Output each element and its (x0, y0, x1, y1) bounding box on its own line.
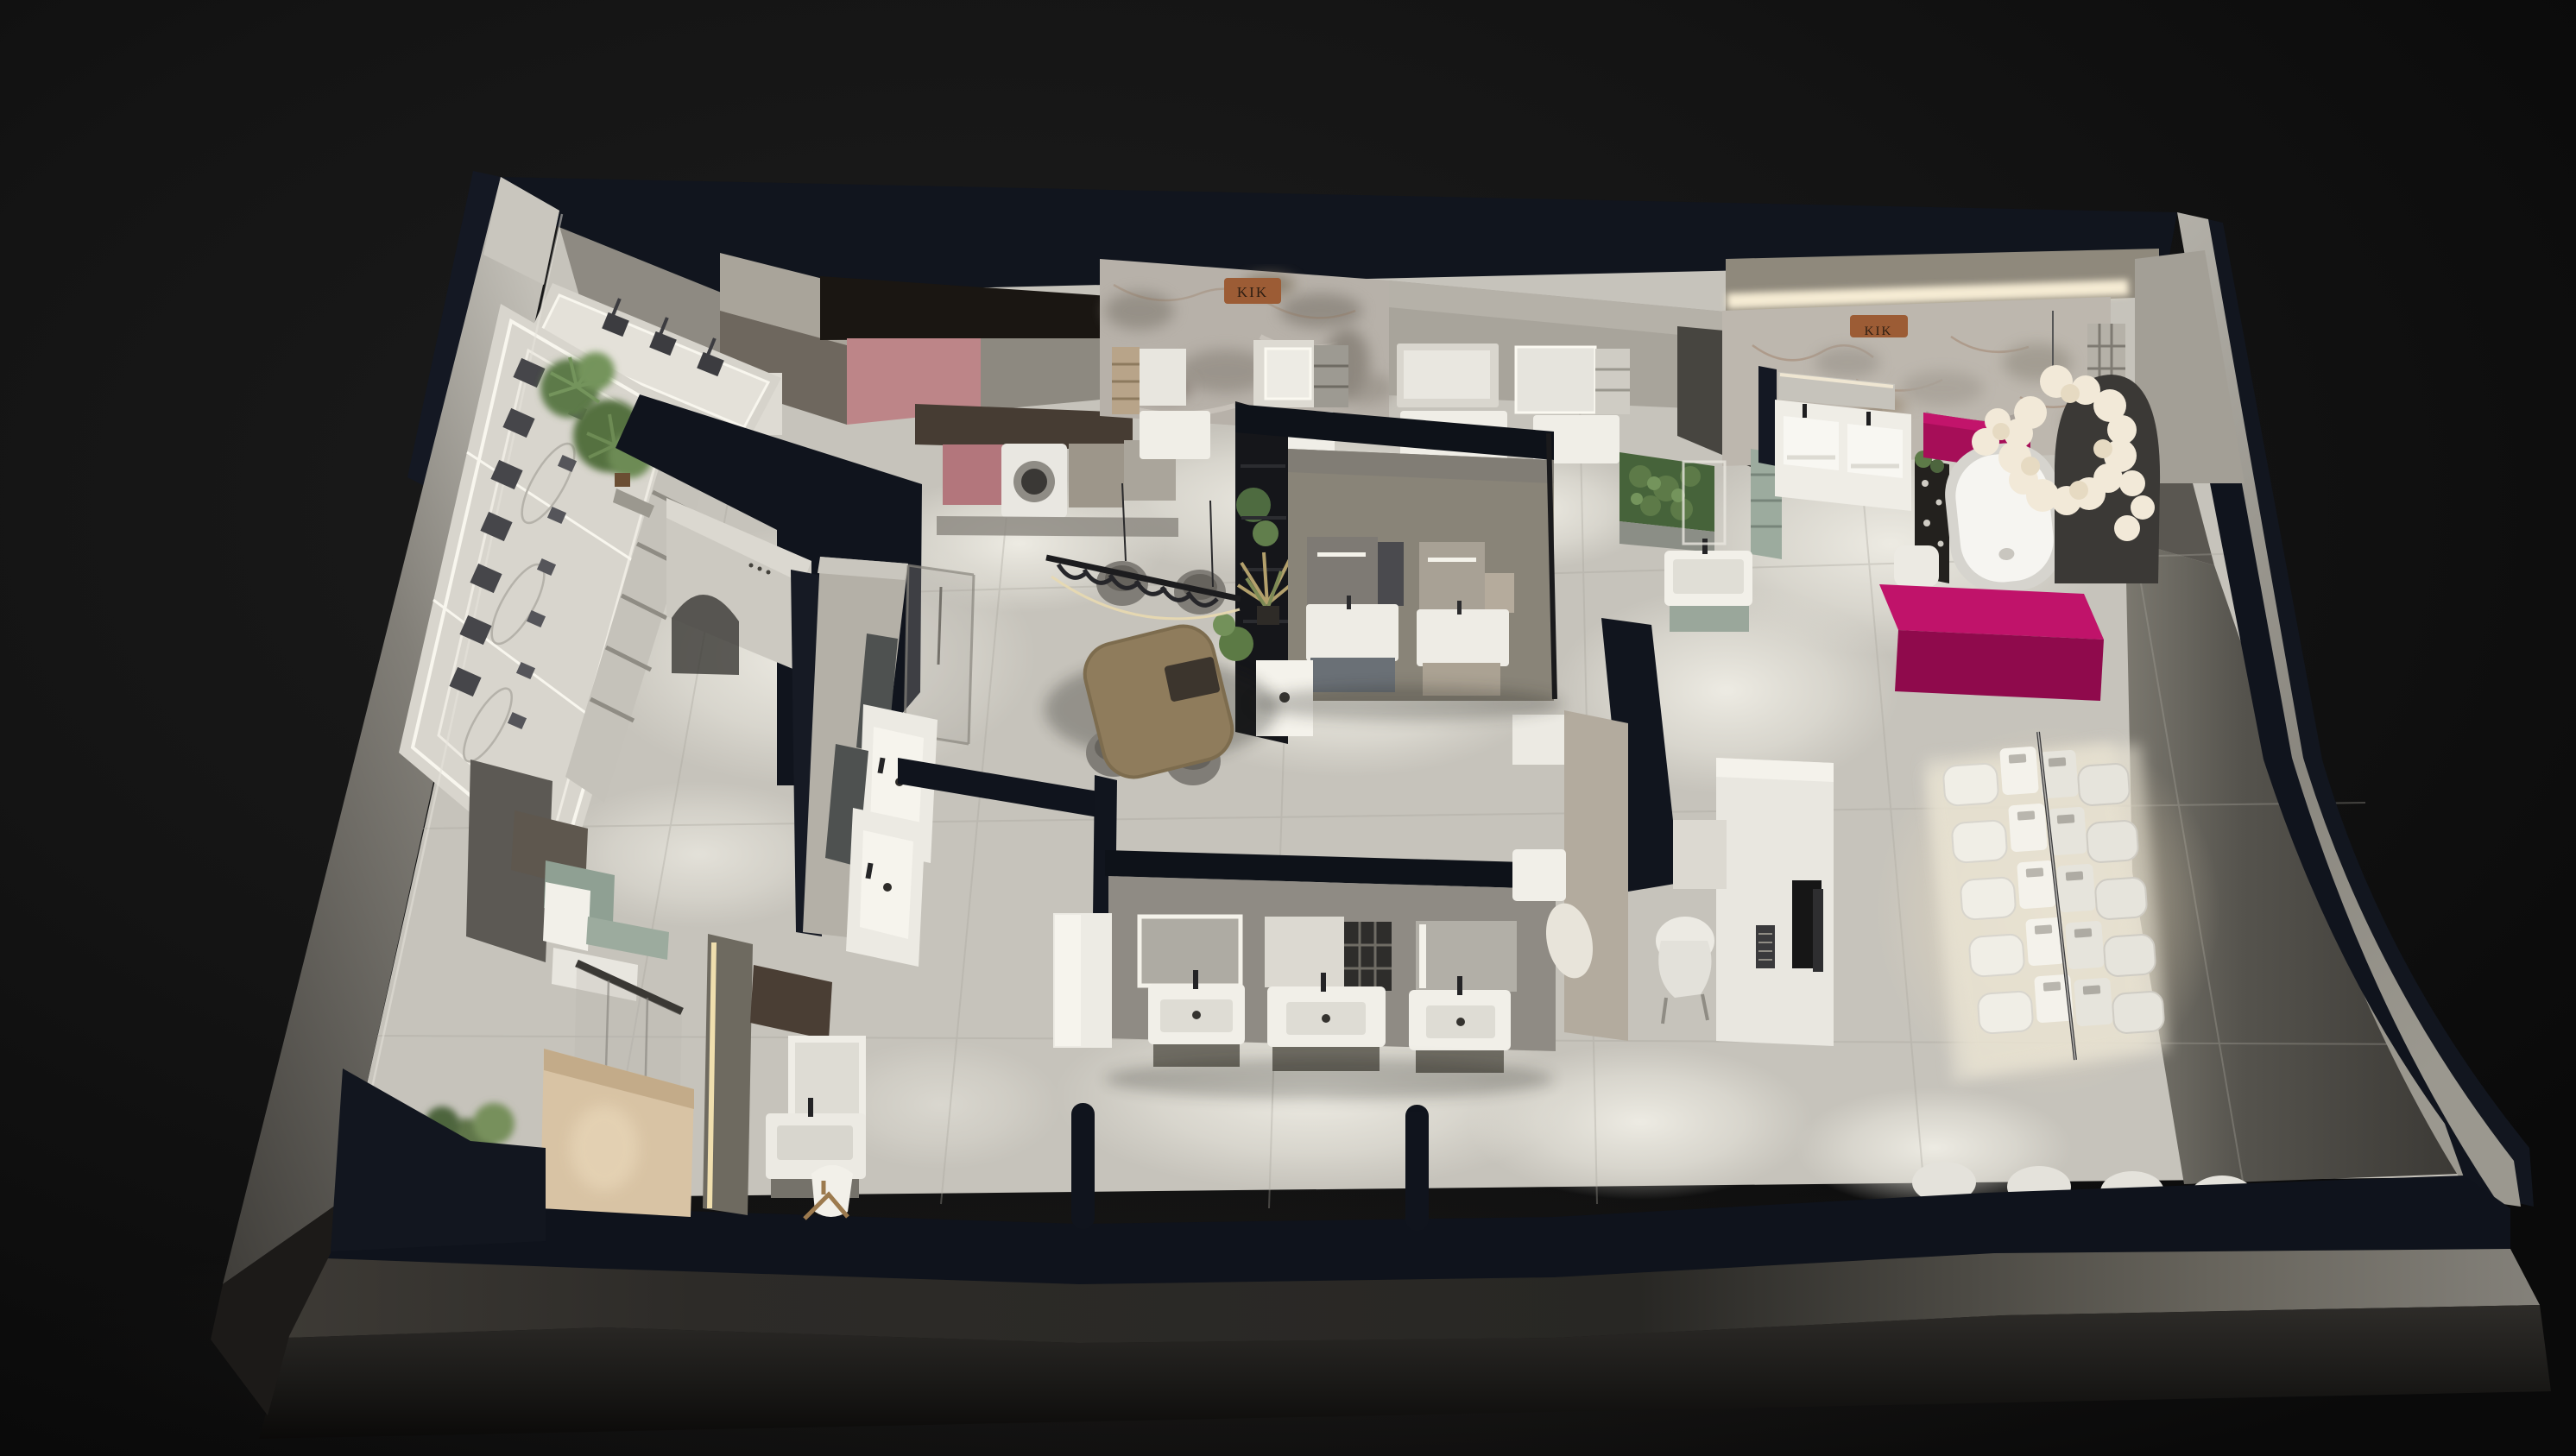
svg-text:KIK: KIK (1865, 325, 1893, 338)
svg-text:KIK: KIK (1237, 284, 1268, 300)
